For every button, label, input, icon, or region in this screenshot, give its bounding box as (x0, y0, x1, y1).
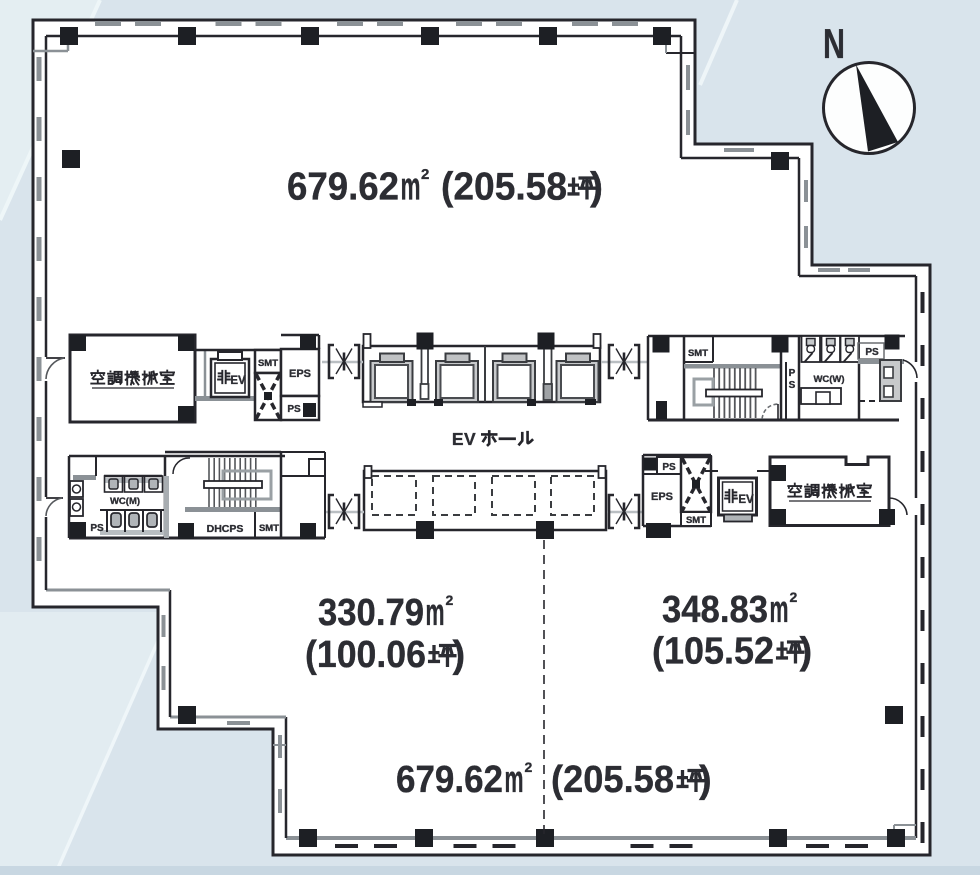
svg-text:N: N (823, 20, 845, 67)
svg-text:(205.58: (205.58 (441, 166, 567, 209)
svg-text:WC(W): WC(W) (813, 374, 844, 385)
svg-text:SMT: SMT (258, 358, 278, 369)
svg-text:(205.58: (205.58 (551, 759, 674, 801)
svg-text:m: m (505, 759, 524, 801)
svg-text:2: 2 (790, 589, 798, 605)
svg-text:m: m (401, 166, 421, 209)
svg-text:m: m (426, 592, 445, 634)
svg-text:2: 2 (421, 166, 429, 183)
svg-text:EV: EV (452, 429, 476, 449)
svg-text:2: 2 (446, 592, 454, 608)
svg-text:330.79: 330.79 (318, 592, 424, 634)
svg-text:(100.06: (100.06 (305, 634, 426, 676)
svg-text:DHCPS: DHCPS (207, 523, 244, 535)
svg-text:EV: EV (738, 494, 754, 506)
svg-text:): ) (590, 166, 603, 209)
svg-text:S: S (789, 380, 796, 391)
svg-text:PS: PS (865, 347, 879, 358)
svg-text:348.83: 348.83 (662, 589, 768, 631)
svg-text:EPS: EPS (651, 491, 673, 503)
svg-text:P: P (789, 368, 796, 379)
svg-text:m: m (770, 589, 789, 631)
svg-text:EPS: EPS (289, 368, 311, 380)
svg-text:SMT: SMT (259, 523, 279, 534)
svg-text:(105.52: (105.52 (652, 631, 774, 673)
svg-text:EV: EV (230, 375, 246, 387)
svg-text:): ) (699, 759, 712, 801)
svg-text:SMT: SMT (688, 348, 708, 359)
svg-text:2: 2 (525, 759, 533, 775)
svg-text:PS: PS (287, 404, 301, 415)
svg-text:): ) (453, 634, 466, 676)
svg-text:SMT: SMT (686, 515, 706, 526)
svg-text:PS: PS (662, 462, 676, 473)
svg-text:WC(M): WC(M) (110, 496, 140, 507)
svg-text:PS: PS (90, 523, 104, 534)
svg-text:679.62: 679.62 (287, 166, 399, 209)
svg-text:): ) (800, 631, 813, 673)
svg-text:679.62: 679.62 (396, 759, 503, 801)
